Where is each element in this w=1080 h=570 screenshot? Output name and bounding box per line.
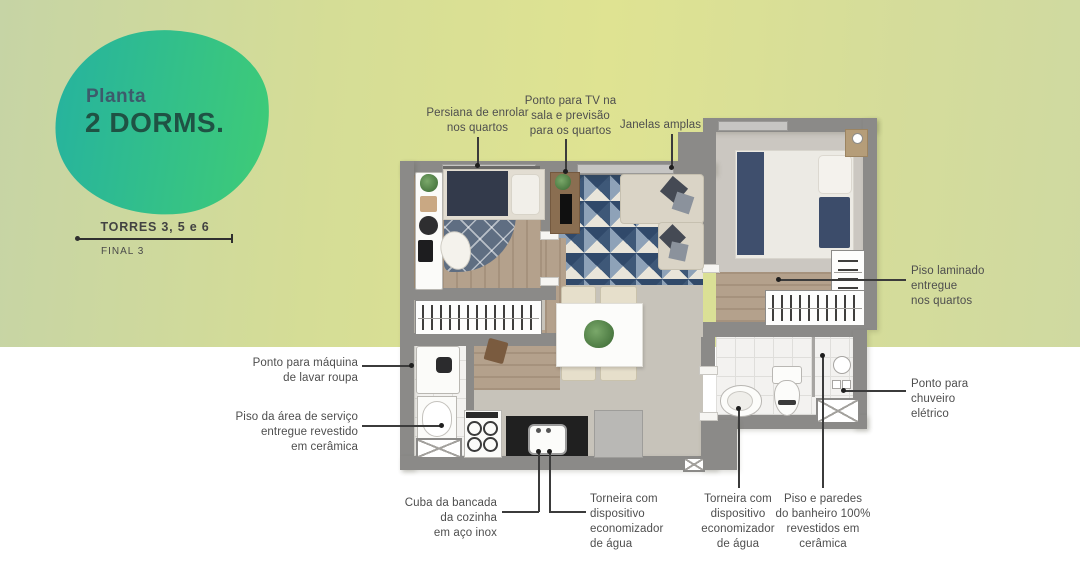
- stove-burner: [467, 437, 482, 452]
- leader-kitchen-faucet-v: [549, 452, 551, 512]
- wardrobe-bedroom1: [415, 300, 542, 335]
- wall-bottom-right-block: [701, 420, 737, 470]
- service-window: [416, 438, 462, 459]
- doorjamb-bedroom1-bottom: [540, 277, 559, 286]
- washing-machine-door: [436, 357, 452, 373]
- callout-laminate-floor: Piso laminado entregue nos quartos: [911, 264, 1021, 309]
- kitchen-faucet: [536, 428, 541, 433]
- double-bed-runner: [737, 152, 764, 255]
- shower-head: [833, 356, 851, 374]
- dining-table-plant: [584, 320, 614, 348]
- leader-dot-laminate-floor: [776, 277, 781, 282]
- window-bedroom2: [718, 121, 788, 131]
- window-living: [577, 164, 674, 174]
- double-bed-pillow: [818, 155, 852, 194]
- single-bed-mattress: [447, 171, 508, 216]
- doorjamb-bathroom-bottom: [699, 412, 718, 421]
- leader-washing-machine: [362, 365, 412, 367]
- desk-stool: [419, 216, 438, 235]
- leader-dot-bathroom-faucet: [736, 406, 741, 411]
- shower-glass-divider: [812, 337, 815, 397]
- laundry-sink-bowl: [422, 401, 452, 437]
- leader-dot-windows: [669, 165, 674, 170]
- final-label: FINAL 3: [101, 246, 144, 257]
- sofa-cushion-gray2: [668, 241, 688, 261]
- stove-burner: [483, 421, 498, 436]
- single-bed-pillow: [511, 174, 540, 215]
- toilet-seat-detail: [778, 400, 796, 405]
- leader-tv-point: [565, 139, 567, 172]
- leader-dot-kitchen-sink: [536, 449, 541, 454]
- doorjamb-bathroom-top: [699, 366, 718, 375]
- callout-washing-machine: Ponto para máquina de lavar roupa: [218, 356, 358, 386]
- badge-subtitle: 2 DORMS.: [85, 107, 224, 139]
- stove-knobs: [466, 412, 498, 418]
- towers-measure-line: [78, 238, 232, 240]
- leader-dot-roller-blind: [475, 163, 480, 168]
- kitchen-faucet-handle: [546, 428, 551, 433]
- callout-service-floor: Piso da área de serviço entregue revesti…: [210, 410, 358, 455]
- tv: [560, 194, 572, 224]
- floorplan-marketing-page: Planta 2 DORMS. TORRES 3, 5 e 6 FINAL 3: [0, 0, 1080, 570]
- towers-label: TORRES 3, 5 e 6: [75, 220, 235, 234]
- doorjamb-bedroom2: [702, 264, 720, 273]
- leader-laminate-floor: [778, 279, 906, 281]
- wardrobe-bedroom2-horizontal: [765, 290, 865, 326]
- leader-dot-washing-machine: [409, 363, 414, 368]
- leader-service-floor: [362, 425, 442, 427]
- leader-kitchen-sink-v: [538, 452, 540, 512]
- towers-measure-dot: [75, 236, 80, 241]
- stove-burner: [483, 437, 498, 452]
- desk-box: [420, 196, 437, 212]
- callout-electric-shower: Ponto para chuveiro elétrico: [911, 377, 1011, 422]
- leader-dot-kitchen-faucet: [547, 449, 552, 454]
- nightstand-lamp: [852, 133, 863, 144]
- leader-kitchen-faucet-h: [549, 511, 586, 513]
- wall-left: [400, 161, 414, 470]
- callout-windows: Janelas amplas: [598, 118, 723, 133]
- leader-dot-bathroom-ceramic: [820, 353, 825, 358]
- leader-electric-shower: [843, 390, 906, 392]
- plant-bedroom1: [420, 174, 438, 192]
- leader-bathroom-ceramic: [822, 355, 824, 488]
- wall-living-bedroom2: [703, 132, 716, 272]
- kitchen-bottom-window: [683, 457, 705, 472]
- callout-kitchen-sink: Cuba da bancada da cozinha em aço inox: [398, 496, 497, 541]
- badge-title: Planta: [86, 86, 146, 108]
- leader-dot-service-floor: [439, 423, 444, 428]
- callout-bathroom-ceramic: Piso e paredes do banheiro 100% revestid…: [764, 492, 882, 552]
- stove-burner: [467, 421, 482, 436]
- wardrobe-bedroom2-vertical: [831, 250, 865, 294]
- leader-dot-tv-point: [563, 169, 568, 174]
- refrigerator: [594, 410, 643, 458]
- shower-control: [832, 380, 841, 389]
- leader-dot-electric-shower: [841, 388, 846, 393]
- plant-tv-rack: [555, 174, 571, 190]
- leader-windows: [671, 134, 673, 168]
- laptop: [418, 240, 433, 262]
- leader-kitchen-sink-h: [502, 511, 539, 513]
- wall-service-divider: [466, 346, 474, 412]
- towers-measure-tick: [231, 234, 233, 243]
- callout-kitchen-faucet: Torneira com dispositivo economizador de…: [590, 492, 680, 552]
- leader-bathroom-faucet: [738, 408, 740, 488]
- double-bed-throw: [819, 197, 850, 248]
